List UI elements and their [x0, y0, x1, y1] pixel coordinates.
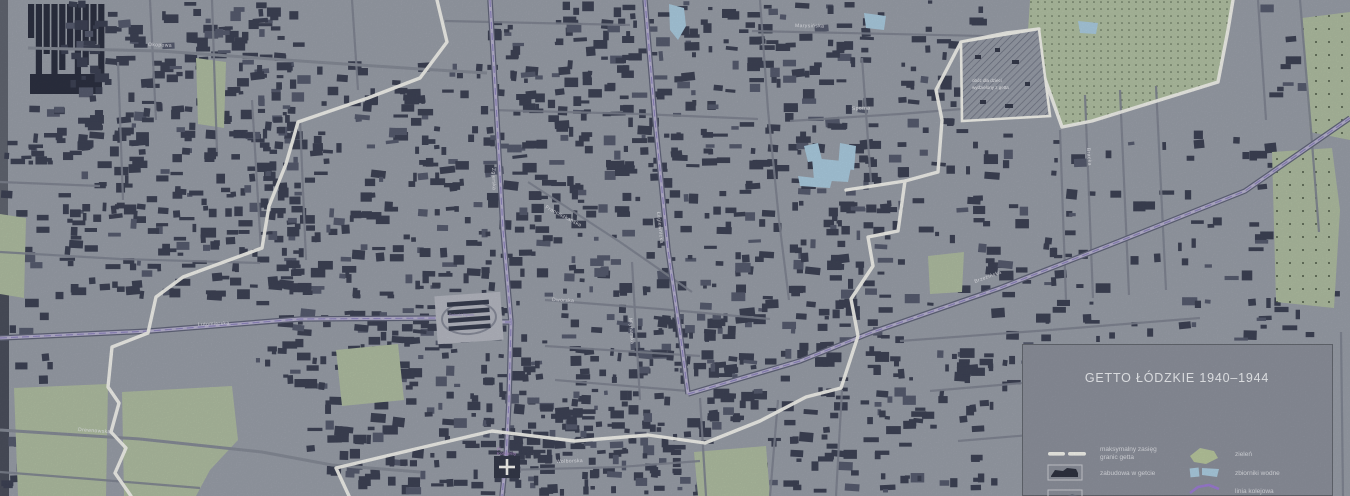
- legend-panel: GETTO ŁÓDZKIE 1940–1944 maksymalny zasię…: [1022, 344, 1333, 496]
- legend-grain: [1022, 344, 1333, 496]
- ghetto-map-page: OkopowaZgierskaŁagiewnickaLutomierskaDre…: [0, 0, 1350, 496]
